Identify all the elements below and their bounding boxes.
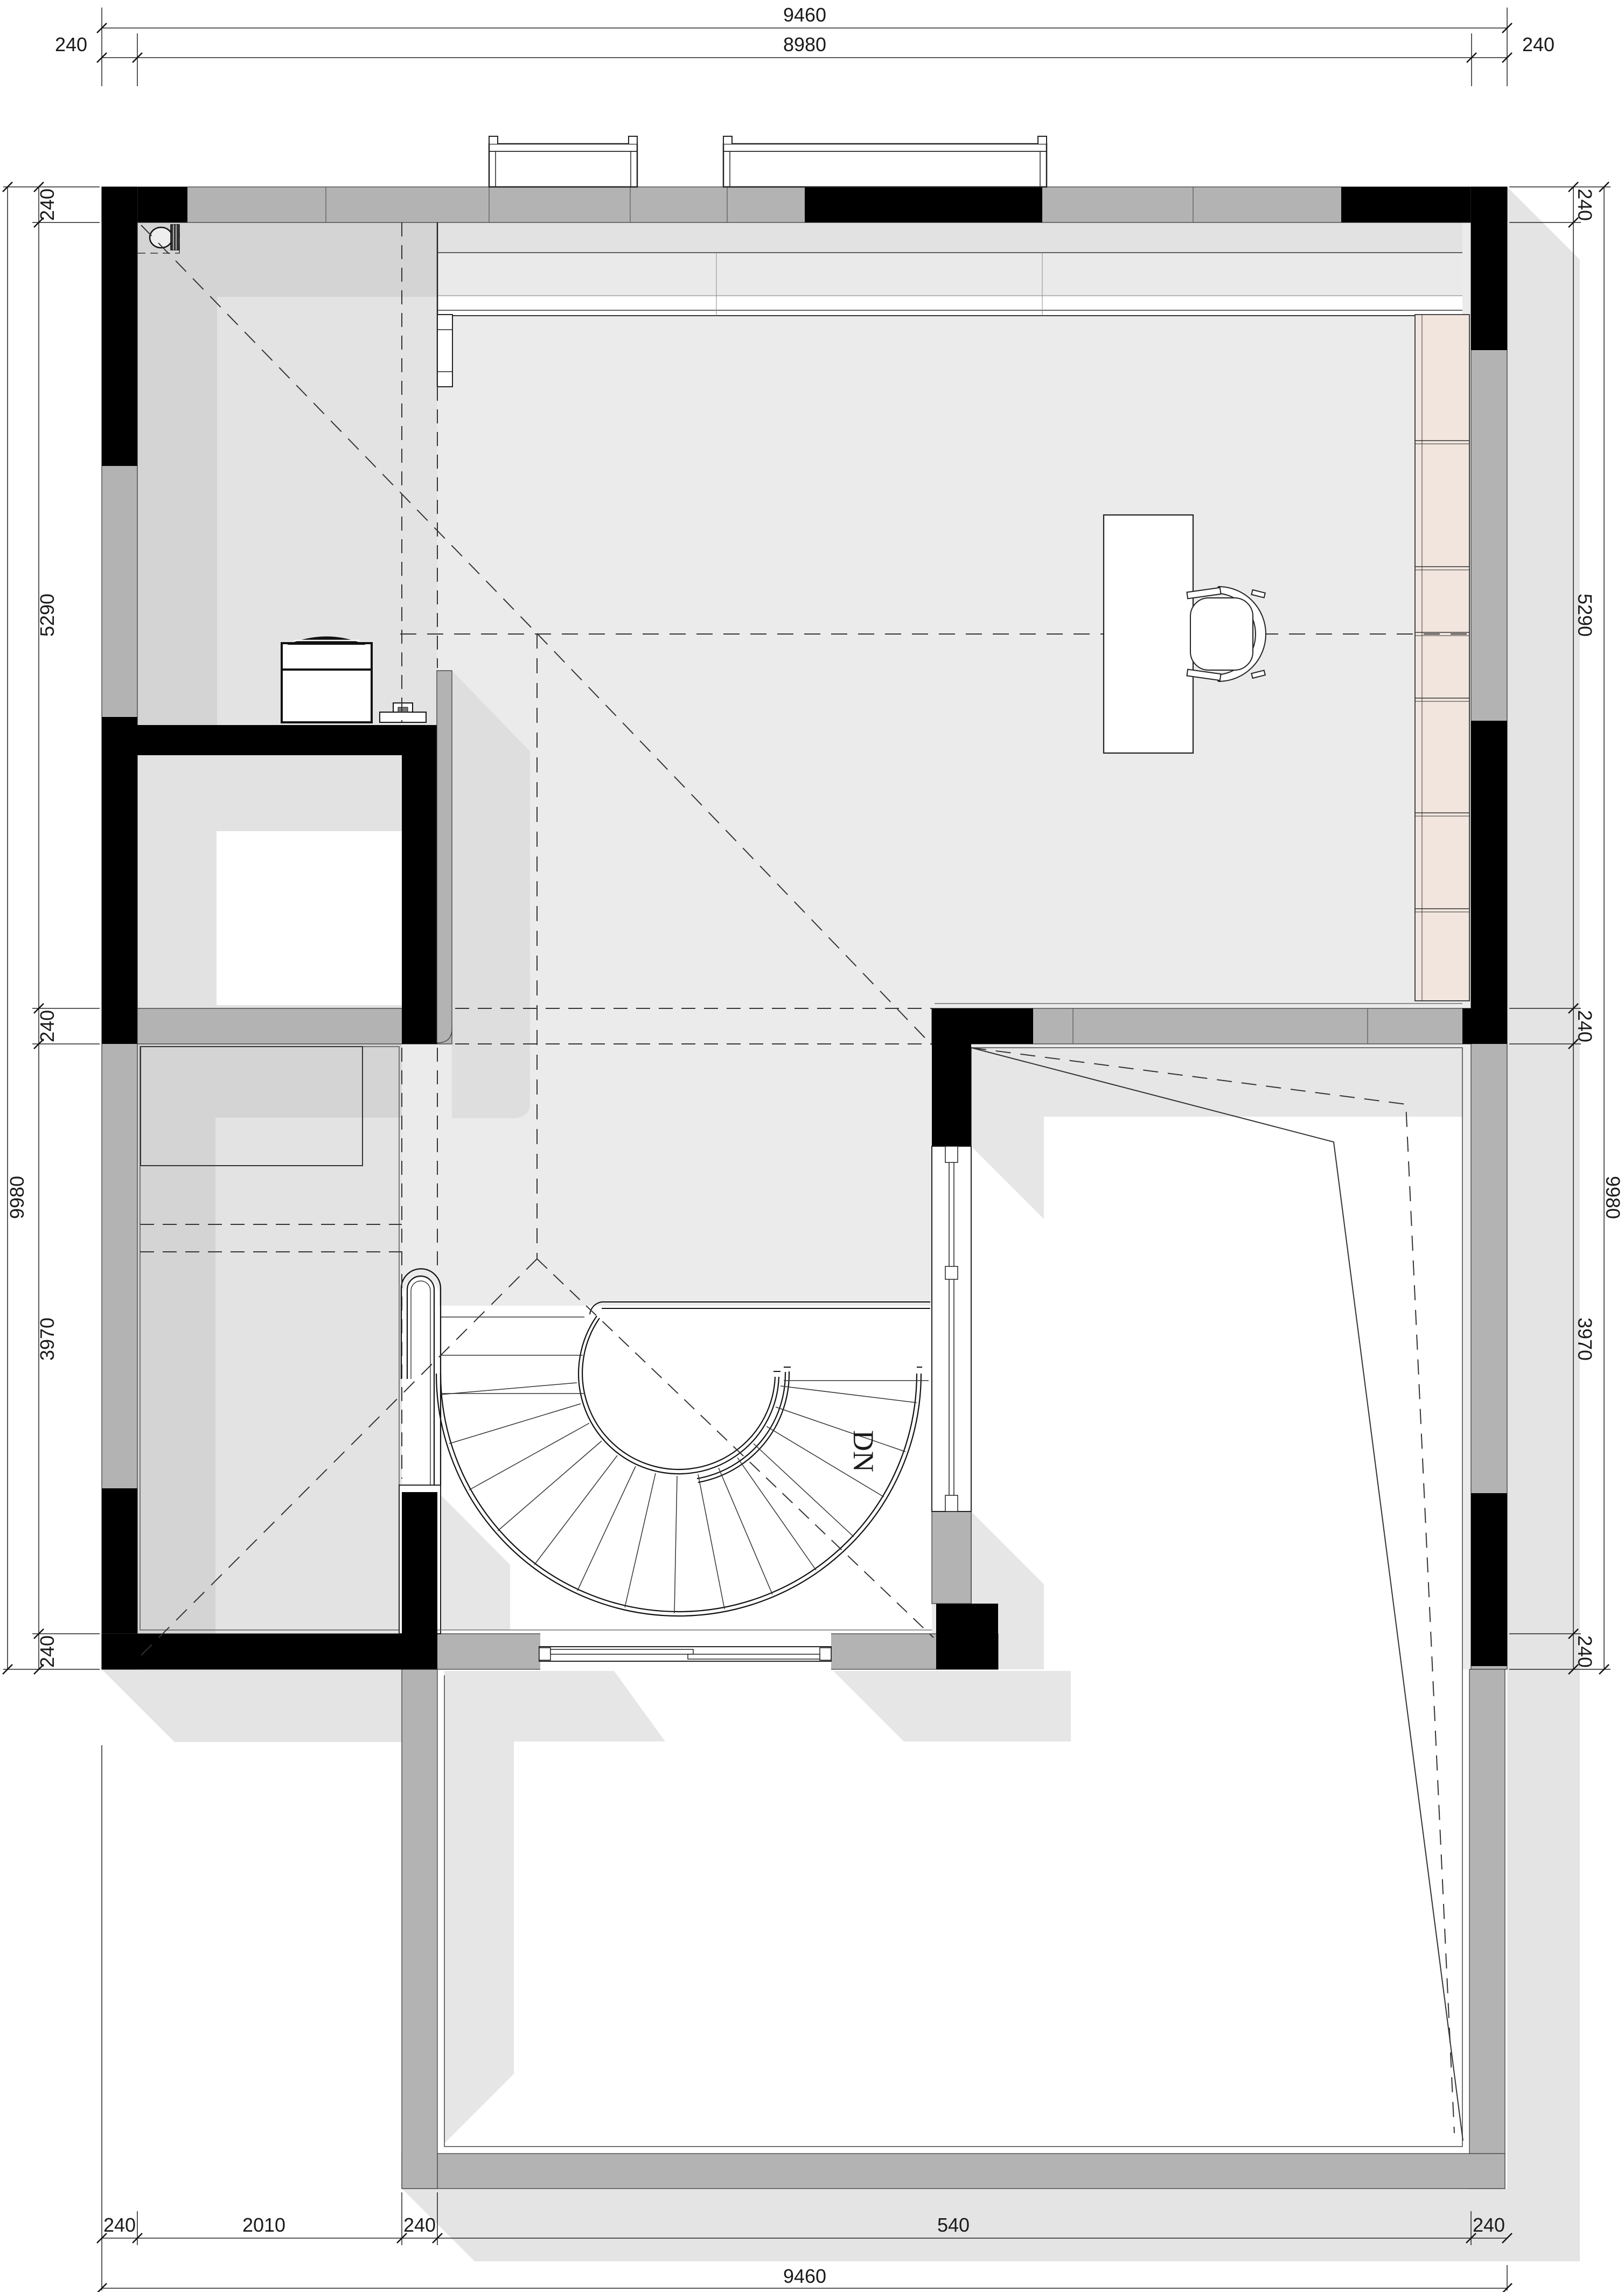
svg-text:240: 240 [1574,1635,1596,1668]
svg-text:3970: 3970 [1574,1318,1596,1361]
svg-text:240: 240 [103,2214,136,2236]
svg-text:240: 240 [1574,189,1596,221]
svg-text:5290: 5290 [1574,594,1596,637]
svg-text:2010: 2010 [242,2214,285,2236]
svg-text:9980: 9980 [6,1176,28,1219]
svg-text:DN: DN [847,1430,880,1472]
svg-text:240: 240 [1473,2214,1505,2236]
svg-text:3970: 3970 [36,1318,58,1361]
svg-text:5290: 5290 [36,594,58,637]
svg-text:240: 240 [55,33,87,55]
svg-text:240: 240 [36,189,58,221]
svg-text:9460: 9460 [783,2265,826,2287]
svg-text:240: 240 [403,2214,436,2236]
svg-text:240: 240 [1574,1010,1596,1042]
svg-text:9980: 9980 [1602,1176,1624,1219]
svg-text:540: 540 [937,2214,970,2236]
svg-text:240: 240 [36,1010,58,1042]
svg-text:240: 240 [36,1635,58,1668]
svg-text:240: 240 [1522,33,1555,55]
svg-text:9460: 9460 [783,4,826,26]
svg-text:8980: 8980 [783,33,826,55]
